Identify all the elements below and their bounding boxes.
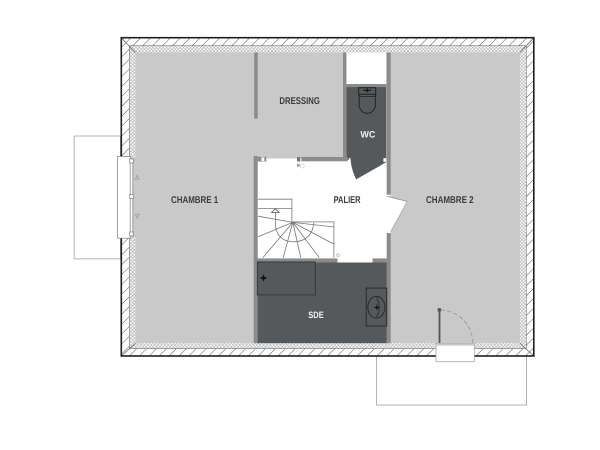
svg-text:WC: WC — [360, 130, 375, 140]
svg-text:CHAMBRE 2: CHAMBRE 2 — [426, 195, 474, 206]
svg-text:DRESSING: DRESSING — [279, 96, 320, 107]
svg-text:PALIER: PALIER — [334, 195, 361, 206]
svg-text:CHAMBRE 1: CHAMBRE 1 — [171, 195, 219, 206]
svg-text:SDE: SDE — [308, 310, 323, 320]
